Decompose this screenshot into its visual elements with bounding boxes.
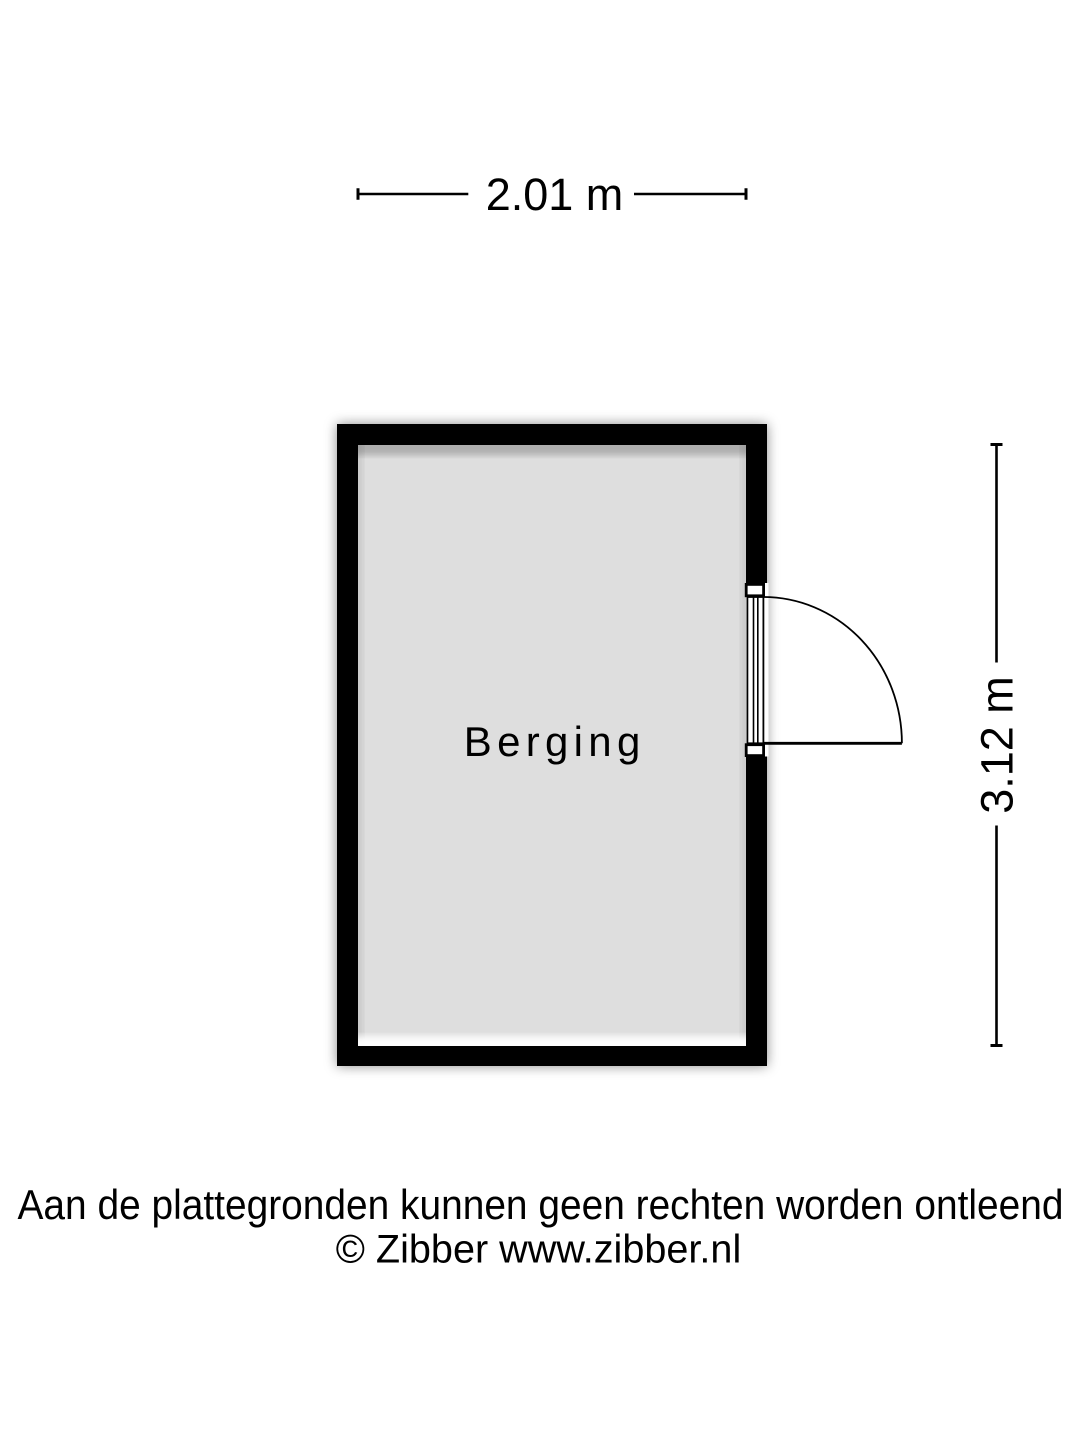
svg-text:Berging: Berging [464, 718, 646, 765]
svg-text:3.12 m: 3.12 m [972, 676, 1023, 814]
svg-text:2.01 m: 2.01 m [486, 169, 624, 220]
svg-text:© Zibber www.zibber.nl: © Zibber www.zibber.nl [336, 1228, 742, 1272]
svg-text:Aan de plattegronden kunnen ge: Aan de plattegronden kunnen geen rechten… [18, 1181, 1064, 1228]
